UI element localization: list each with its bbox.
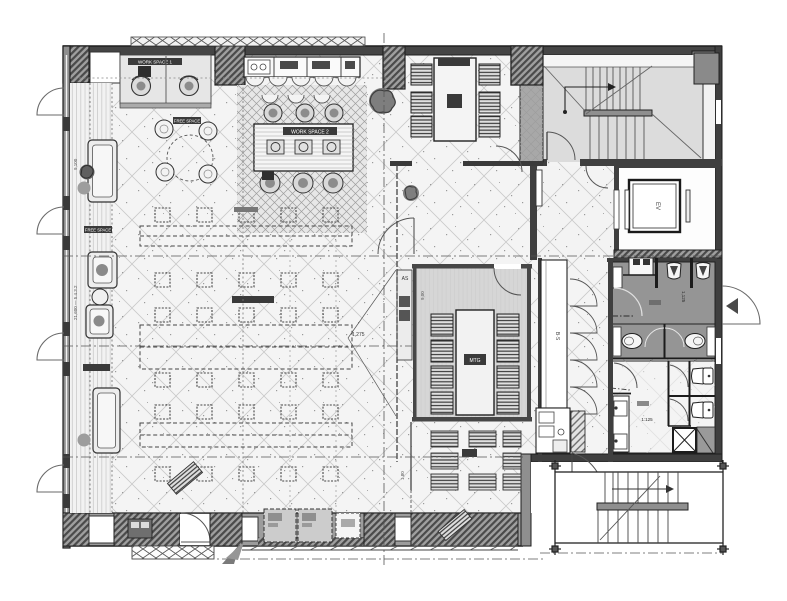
svg-text:21,600 — 5.4.3.2: 21,600 — 5.4.3.2 bbox=[73, 285, 78, 320]
svg-text:B·S: B·S bbox=[554, 332, 560, 341]
svg-text:9,00: 9,00 bbox=[420, 291, 425, 300]
svg-text:FREE SPACE: FREE SPACE bbox=[174, 119, 200, 124]
svg-text:1,125: 1,125 bbox=[681, 291, 686, 303]
svg-text:9,100: 9,100 bbox=[73, 158, 78, 170]
svg-text:WORK SPACE 1: WORK SPACE 1 bbox=[138, 60, 172, 65]
svg-text:EV: EV bbox=[654, 202, 660, 210]
svg-text:1:125: 1:125 bbox=[641, 417, 653, 422]
svg-text:AS: AS bbox=[402, 276, 409, 282]
svg-text:FREE SPACE: FREE SPACE bbox=[85, 228, 111, 233]
svg-text:MTG: MTG bbox=[469, 358, 480, 364]
svg-text:WORK SPACE 2: WORK SPACE 2 bbox=[291, 130, 329, 136]
svg-text:1,80: 1,80 bbox=[400, 471, 405, 480]
svg-text:1,275: 1,275 bbox=[352, 332, 365, 338]
